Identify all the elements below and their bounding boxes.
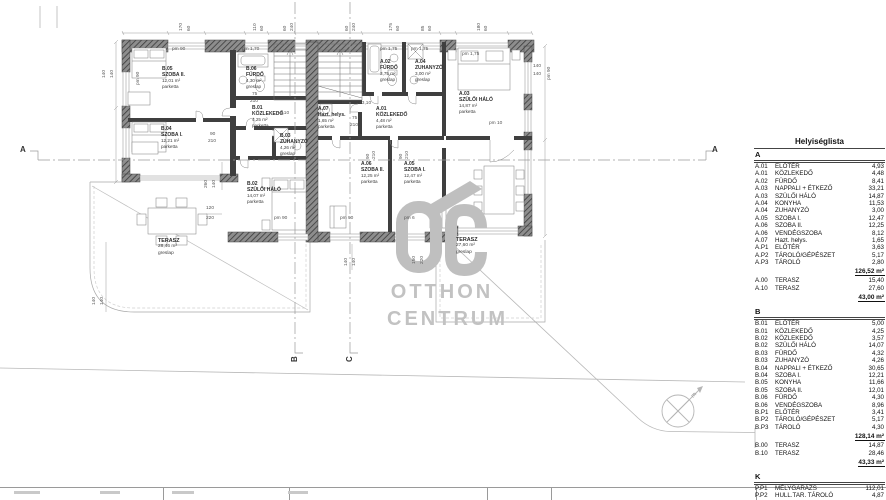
plan-annotation: 220: [206, 216, 214, 221]
room-finish: parketta: [459, 109, 493, 115]
table-cell: B.P1: [754, 409, 775, 416]
table-cell: B.04: [754, 372, 775, 379]
table-row: B.03ZUHANYZÓ4,26: [754, 357, 885, 364]
table-cell: SZÜLŐI HÁLÓ: [775, 342, 854, 349]
table-cell: 11,53: [854, 200, 885, 207]
table-cell: KÖZLEKEDŐ: [775, 335, 854, 342]
room-label: A.06SZOBA II.12,25 m²parketta: [361, 161, 384, 185]
plan-annotation: 140: [533, 72, 541, 77]
table-row: B.00TERASZ14,87: [754, 442, 885, 449]
dimension-label: 150: [412, 256, 417, 264]
table-cell: 8,96: [854, 402, 885, 409]
table-cell: B.05: [754, 387, 775, 394]
title-block-text-smudge: [100, 491, 120, 494]
table-cell: 28,46: [854, 450, 885, 457]
room-label: A.05SZOBA I.12,47 m²parketta: [404, 161, 425, 185]
table-cell: 12,21: [854, 372, 885, 379]
dimension-label: 210: [405, 151, 410, 159]
room-finish: greslap: [380, 77, 398, 83]
dimension-label: 140: [92, 297, 97, 305]
table-row: B.02SZÜLŐI HÁLÓ14,07: [754, 342, 885, 349]
table-row: B.05SZOBA II.12,01: [754, 387, 885, 394]
table-cell: 5,17: [854, 252, 885, 259]
room-finish: parketta: [376, 124, 407, 130]
table-cell: KÖZLEKEDŐ: [775, 170, 854, 177]
dimension-label: 60: [428, 26, 433, 31]
table-cell: A.07: [754, 237, 775, 244]
table-row: A.P1ELŐTÉR3,63: [754, 244, 885, 251]
section-marker: C: [345, 356, 354, 362]
table-cell: TÁROLÓ/GÉPÉSZET: [775, 416, 854, 423]
table-cell: 4,26: [854, 357, 885, 364]
table-cell: 30,65: [854, 365, 885, 372]
table-cell: A.01: [754, 163, 775, 170]
table-cell: A.03: [754, 193, 775, 200]
table-cell: 5,00: [854, 320, 885, 327]
table-cell: 3,41: [854, 409, 885, 416]
table-row: B.P3TÁROLÓ4,30: [754, 424, 885, 431]
table-cell: B.06: [754, 402, 775, 409]
section-marker: B: [290, 356, 299, 362]
plan-annotation: pm 1,75: [462, 52, 479, 57]
plan-annotation: pm 1,75: [411, 47, 428, 52]
table-cell: SZOBA I.: [775, 372, 854, 379]
plan-annotation: pm 1,75: [380, 47, 397, 52]
table-cell: Hazt. helys.: [775, 237, 854, 244]
dimension-label: 140: [212, 180, 217, 188]
plan-annotation: 140: [533, 64, 541, 69]
table-cell: B.01: [754, 328, 775, 335]
table-row: B.04NAPPALI + ÉTKEZŐ30,65: [754, 365, 885, 372]
table-cell: 5,17: [854, 416, 885, 423]
title-block-divider: [551, 488, 552, 500]
table-cell: B.P3: [754, 424, 775, 431]
table-row: A.P2TÁROLÓ/GÉPÉSZET5,17: [754, 252, 885, 259]
terrace-finish: greslap: [158, 251, 180, 257]
table-cell: TERASZ: [775, 450, 854, 457]
table-cell: A.01: [754, 170, 775, 177]
table-cell: A.05: [754, 215, 775, 222]
table-cell: VENDÉGSZOBA: [775, 230, 854, 237]
table-cell: B.01: [754, 320, 775, 327]
table-row: B.04SZOBA I.12,21: [754, 372, 885, 379]
plan-annotation: pm 6: [404, 216, 415, 221]
table-cell: P.P1: [754, 485, 775, 492]
table-row: A.01KÖZLEKEDŐ4,48: [754, 170, 885, 177]
table-cell: B.10: [754, 450, 775, 457]
table-cell: SZOBA I.: [775, 215, 854, 222]
table-cell: A.03: [754, 185, 775, 192]
dimension-label: 60: [396, 26, 401, 31]
table-cell: ZUHANYZÓ: [775, 357, 854, 364]
table-cell: SZÜLŐI HÁLÓ: [775, 193, 854, 200]
table-row: B.10TERASZ28,46: [754, 450, 885, 457]
table-cell: 4,30: [854, 394, 885, 401]
dimension-label: 90: [366, 154, 371, 159]
table-row: A.P3TÁROLÓ2,80: [754, 259, 885, 266]
table-row: A.10TERASZ27,60: [754, 285, 885, 292]
table-row: P.P1MÉLYGARÁZS112,01: [754, 485, 885, 492]
table-cell: 4,30: [854, 424, 885, 431]
room-finish: parketta: [361, 179, 384, 185]
room-label: A.01KÖZLEKEDŐ4,48 m²parketta: [376, 106, 407, 130]
terrace-finish: greslap: [456, 250, 478, 256]
room-list-section-header: B: [754, 306, 885, 320]
table-row: B.06VENDÉGSZOBA8,96: [754, 402, 885, 409]
table-cell: FÜRDŐ: [775, 350, 854, 357]
table-cell: B.03: [754, 350, 775, 357]
table-cell: 3,57: [854, 335, 885, 342]
dimension-label: 60: [345, 26, 350, 31]
title-block-divider: [289, 488, 290, 500]
table-cell: FÜRDŐ: [775, 394, 854, 401]
table-cell: 3,00: [854, 207, 885, 214]
plan-annotation: pm 90: [340, 216, 353, 221]
table-cell: 14,07: [854, 342, 885, 349]
dimension-label: 240: [290, 23, 295, 31]
plan-annotation: 75: [252, 92, 257, 97]
title-block-divider: [487, 488, 488, 500]
table-cell: 8,41: [854, 178, 885, 185]
room-finish: greslap: [415, 77, 443, 83]
table-row: B.02KÖZLEKEDŐ3,57: [754, 335, 885, 342]
table-cell: 33,21: [854, 185, 885, 192]
room-finish: parketta: [404, 179, 425, 185]
table-cell: SZOBA II.: [775, 222, 854, 229]
table-cell: 8,12: [854, 230, 885, 237]
terrace-area: 28,46 m²: [158, 244, 180, 250]
table-row: A.04KONYHA11,53: [754, 200, 885, 207]
dimension-label: 260: [204, 180, 209, 188]
dimension-label: 110: [253, 23, 258, 31]
table-row: B.P1ELŐTÉR3,41: [754, 409, 885, 416]
table-cell: 112,01: [854, 485, 885, 492]
table-cell: TERASZ: [775, 442, 854, 449]
terrace-subtotal: 43,00 m²: [754, 294, 885, 301]
room-label: A.04ZUHANYZÓ3,00 m²greslap: [415, 59, 443, 83]
table-cell: A.00: [754, 277, 775, 284]
table-cell: KÖZLEKEDŐ: [775, 328, 854, 335]
table-cell: A.04: [754, 200, 775, 207]
room-label: B.01KÖZLEKEDŐ4,25 m²parketta: [252, 105, 283, 129]
plan-annotation: pm 10: [489, 121, 502, 126]
table-cell: 27,60: [854, 285, 885, 292]
table-cell: B.06: [754, 394, 775, 401]
table-cell: B.P2: [754, 416, 775, 423]
dimension-label: 140: [100, 297, 105, 305]
dimension-label: 210: [372, 151, 377, 159]
room-finish: greslap: [280, 151, 308, 157]
room-label: B.03ZUHANYZÓ4,26 m²greslap: [280, 133, 308, 157]
plan-annotation: 75: [352, 116, 357, 121]
table-row: B.P2TÁROLÓ/GÉPÉSZET5,17: [754, 416, 885, 423]
table-cell: B.02: [754, 342, 775, 349]
table-row: B.05KONYHA11,66: [754, 379, 885, 386]
room-list-section-header: A: [754, 149, 885, 163]
dimension-label: 140: [102, 70, 107, 78]
dimension-label: 60: [484, 26, 489, 31]
dimension-label: 60: [260, 26, 265, 31]
table-cell: 12,25: [854, 222, 885, 229]
table-cell: 15,40: [854, 277, 885, 284]
room-finish: parketta: [318, 124, 346, 130]
room-list-title: Helyiséglista: [754, 137, 885, 149]
plan-annotation: 90: [210, 132, 215, 137]
north-arrow-icon: [662, 386, 703, 427]
table-cell: 4,87: [854, 492, 885, 499]
table-row: A.03SZÜLŐI HÁLÓ14,87: [754, 193, 885, 200]
room-finish: parketta: [161, 144, 182, 150]
plan-annotation: 210: [208, 139, 216, 144]
table-cell: 4,32: [854, 350, 885, 357]
dimension-label: 60: [283, 26, 288, 31]
table-cell: 14,87: [854, 442, 885, 449]
dimension-label: pm 90: [547, 67, 552, 80]
table-cell: FÜRDŐ: [775, 178, 854, 185]
table-cell: SZOBA II.: [775, 387, 854, 394]
section-marker: A: [20, 145, 26, 154]
table-row: A.01ELŐTÉR4,93: [754, 163, 885, 170]
terrace-label: TERASZ28,46 m²greslap: [158, 238, 180, 257]
terrace-label: TERASZ27,60 m²greslap: [456, 237, 478, 256]
plan-annotation: +3,10: [359, 101, 371, 106]
room-label: B.02SZÜLŐI HÁLÓ14,07 m²parketta: [247, 181, 281, 205]
staircases: [274, 44, 362, 100]
table-cell: 4,25: [854, 328, 885, 335]
table-cell: A.P2: [754, 252, 775, 259]
table-cell: P.P2: [754, 492, 775, 499]
table-cell: B.00: [754, 442, 775, 449]
table-cell: VENDÉGSZOBA: [775, 402, 854, 409]
plan-annotation: pm 1,70: [242, 47, 259, 52]
room-list-body: AA.01ELŐTÉR4,93A.01KÖZLEKEDŐ4,48A.02FÜRD…: [754, 149, 885, 500]
table-cell: A.P3: [754, 259, 775, 266]
table-cell: TÁROLÓ/GÉPÉSZET: [775, 252, 854, 259]
table-cell: ELŐTÉR: [775, 163, 854, 170]
table-row: A.04ZUHANYZÓ3,00: [754, 207, 885, 214]
plan-annotation: 210: [250, 99, 258, 104]
table-row: A.06VENDÉGSZOBA8,12: [754, 230, 885, 237]
table-cell: A.04: [754, 207, 775, 214]
room-label: B.06FÜRDŐ4,30 m²greslap: [246, 66, 264, 90]
room-finish: parketta: [252, 123, 283, 129]
room-label: B.05SZOBA II.12,01 m²parketta: [162, 66, 185, 90]
room-list-table: Helyiséglista AA.01ELŐTÉR4,93A.01KÖZLEKE…: [754, 137, 885, 500]
table-row: A.00TERASZ15,40: [754, 277, 885, 284]
table-cell: NAPPALI + ÉTKEZŐ: [775, 185, 854, 192]
room-finish: parketta: [162, 84, 185, 90]
dimension-label: 220: [420, 256, 425, 264]
table-cell: MÉLYGARÁZS: [775, 485, 854, 492]
table-row: A.06SZOBA II.12,25: [754, 222, 885, 229]
dimension-label: pm 90: [136, 72, 141, 85]
terrace-area: 27,60 m²: [456, 243, 478, 249]
table-cell: B.03: [754, 357, 775, 364]
table-cell: 12,47: [854, 215, 885, 222]
table-cell: A.P1: [754, 244, 775, 251]
dimension-label: 240: [352, 23, 357, 31]
table-row: B.01KÖZLEKEDŐ4,25: [754, 328, 885, 335]
table-row: A.02FÜRDŐ8,41: [754, 178, 885, 185]
table-cell: TERASZ: [775, 277, 854, 284]
title-block-text-smudge: [14, 491, 40, 494]
table-cell: 11,66: [854, 379, 885, 386]
table-cell: TÁROLÓ: [775, 259, 854, 266]
section-marker: A: [712, 145, 718, 154]
table-row: P.P2HULL.TAR. TÁROLÓ4,87: [754, 492, 885, 499]
title-block-text-smudge: [288, 491, 308, 494]
table-cell: TERASZ: [775, 285, 854, 292]
table-cell: 14,87: [854, 193, 885, 200]
section-subtotal: 128,14 m²: [754, 433, 885, 440]
dimension-label: 170: [179, 23, 184, 31]
dimension-label: 180: [477, 23, 482, 31]
table-cell: 2,80: [854, 259, 885, 266]
plan-annotation: +4,10: [277, 111, 289, 116]
table-row: A.07Hazt. helys.1,65: [754, 237, 885, 244]
dimension-label: 175: [389, 23, 394, 31]
plan-annotation: 120: [206, 206, 214, 211]
table-row: A.05SZOBA I.12,47: [754, 215, 885, 222]
room-list-section-header: K: [754, 471, 885, 485]
dimension-label: 140: [344, 258, 349, 266]
title-block-divider: [163, 488, 164, 500]
table-cell: B.05: [754, 379, 775, 386]
table-row: B.03FÜRDŐ4,32: [754, 350, 885, 357]
table-cell: 12,01: [854, 387, 885, 394]
table-cell: ELŐTÉR: [775, 409, 854, 416]
table-cell: B.04: [754, 365, 775, 372]
room-finish: parketta: [247, 199, 281, 205]
table-cell: ELŐTÉR: [775, 244, 854, 251]
dimension-label: 90: [399, 154, 404, 159]
table-cell: A.02: [754, 178, 775, 185]
dimension-label: 60: [187, 26, 192, 31]
table-cell: 4,48: [854, 170, 885, 177]
floorplan-page: OTTHON CENTRUM B.05SZOBA II.12,01 m²park…: [0, 0, 886, 500]
room-label: A.07Hazt. helys.1,65 m²parketta: [318, 106, 346, 130]
watermark-line1: OTTHON: [387, 281, 497, 304]
watermark-line2: CENTRUM: [387, 308, 497, 331]
title-block-text-smudge: [172, 491, 194, 494]
table-cell: NAPPALI + ÉTKEZŐ: [775, 365, 854, 372]
table-row: B.06FÜRDŐ4,30: [754, 394, 885, 401]
table-cell: 3,63: [854, 244, 885, 251]
table-cell: KONYHA: [775, 200, 854, 207]
plan-annotation: pm 90: [274, 216, 287, 221]
table-cell: A.10: [754, 285, 775, 292]
table-cell: 4,93: [854, 163, 885, 170]
dimension-label: 85: [421, 26, 426, 31]
plan-annotation: pm 90: [172, 47, 185, 52]
table-cell: KONYHA: [775, 379, 854, 386]
table-row: B.01ELŐTÉR5,00: [754, 320, 885, 327]
table-cell: ELŐTÉR: [775, 320, 854, 327]
dimension-label: 140: [352, 258, 357, 266]
table-cell: TÁROLÓ: [775, 424, 854, 431]
room-label: A.03SZÜLŐI HÁLÓ14,87 m²parketta: [459, 91, 493, 115]
room-finish: greslap: [246, 84, 264, 90]
table-cell: A.06: [754, 230, 775, 237]
room-label: B.04SZOBA I.12,21 m²parketta: [161, 126, 182, 150]
section-subtotal: 126,52 m²: [754, 268, 885, 275]
table-cell: ZUHANYZÓ: [775, 207, 854, 214]
table-cell: B.02: [754, 335, 775, 342]
table-cell: 1,65: [854, 237, 885, 244]
table-cell: A.06: [754, 222, 775, 229]
dimension-label: 140: [110, 70, 115, 78]
terrace-subtotal: 43,33 m²: [754, 459, 885, 466]
room-label: A.02FÜRDŐ3,75 m²greslap: [380, 59, 398, 83]
table-row: A.03NAPPALI + ÉTKEZŐ33,21: [754, 185, 885, 192]
table-cell: HULL.TAR. TÁROLÓ: [775, 492, 854, 499]
plan-annotation: 210: [350, 123, 358, 128]
